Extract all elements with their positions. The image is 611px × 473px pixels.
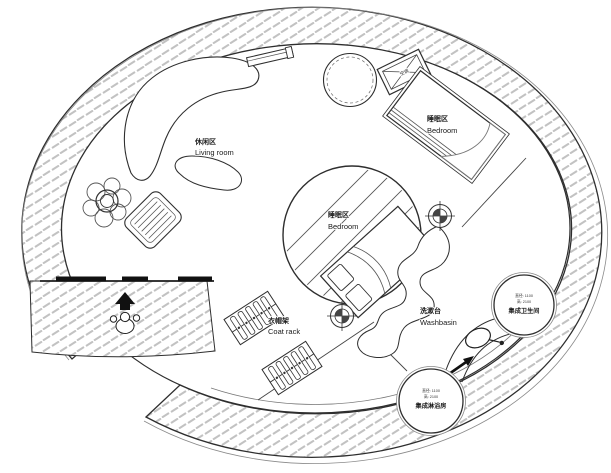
coat-rack-label-zh: 衣帽架: [268, 316, 289, 325]
floor-plan-page: 空调: [0, 0, 611, 473]
washbasin-label-zh: 洗漱台: [420, 306, 441, 315]
coat-rack-label-en: Coat rack: [268, 327, 300, 336]
bathroom-height-label: 高: 2100: [517, 299, 531, 304]
bedroom-upper-label-zh: 睡眠区: [427, 114, 448, 123]
round-table: [324, 54, 377, 107]
shower-name-label: 集成淋浴房: [415, 402, 447, 410]
living-room-label-en: Living room: [195, 148, 234, 157]
shower-diameter-label: 直径: 1100: [422, 388, 440, 393]
entry-door: [40, 277, 214, 282]
bedroom-center-label-zh: 睡眠区: [328, 210, 349, 219]
bedroom-center-label-en: Bedroom: [328, 222, 358, 231]
bathroom-name-label: 集成卫生间: [508, 307, 540, 315]
shower-pod: 直径: 1100 高: 2100 集成淋浴房: [397, 367, 466, 436]
bathroom-diameter-label: 直径: 1100: [515, 293, 533, 298]
bedroom-upper-label-en: Bedroom: [427, 126, 457, 135]
living-room-label-zh: 休闲区: [194, 137, 216, 146]
bathroom-pod: 直径: 1100 高: 2100 集成卫生间: [492, 273, 557, 338]
washbasin-label-en: Washbasin: [420, 318, 457, 327]
floor-plan: 空调: [0, 0, 611, 473]
shower-height-label: 高: 2100: [424, 394, 438, 399]
